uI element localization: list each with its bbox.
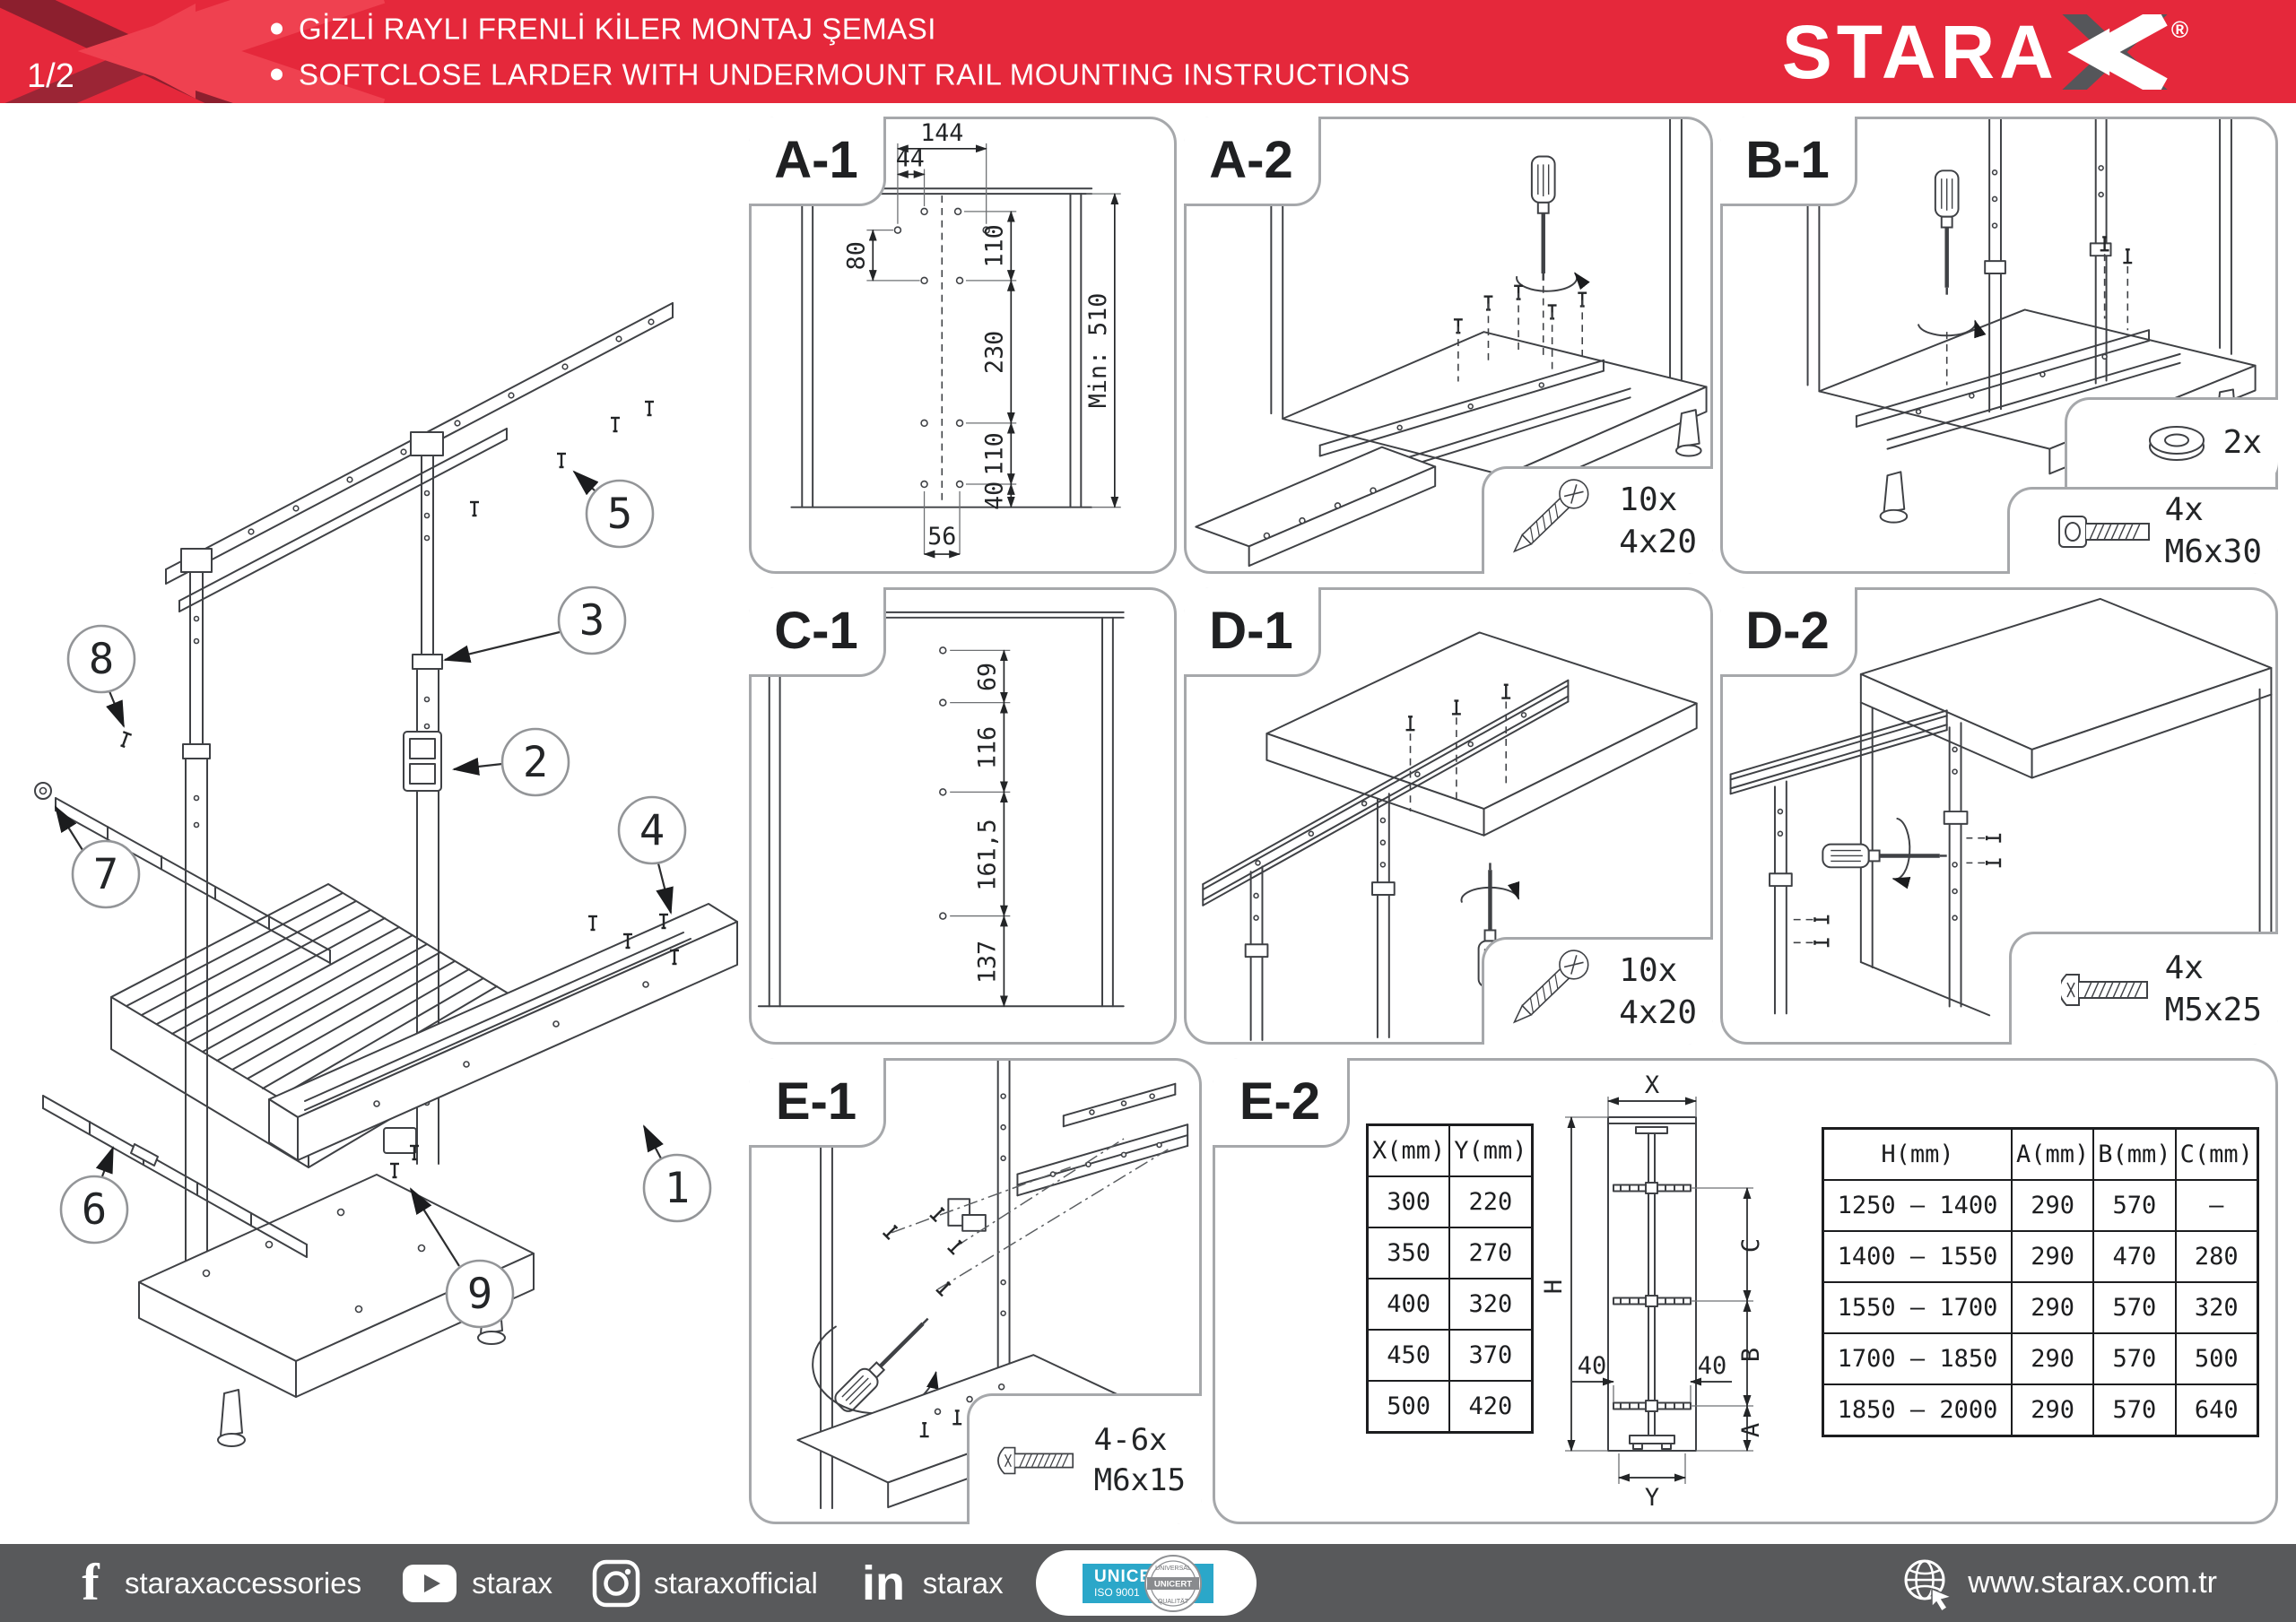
top-rail (166, 303, 673, 612)
header-bar: 1/2 GİZLİ RAYLI FRENLİ KİLER MONTAJ ŞEMA… (0, 0, 2296, 103)
bullet-icon (271, 69, 283, 81)
unicert-seal: UNIVERSAL UNICERT QUALITÄT (1144, 1554, 1203, 1613)
pullout-tray (1196, 447, 1435, 566)
lock-bracket (384, 1128, 416, 1153)
svg-text:3: 3 (579, 596, 604, 646)
svg-text:6: 6 (82, 1185, 107, 1235)
globe-icon (1901, 1557, 1953, 1610)
socket-bolt-icon (2057, 509, 2151, 554)
youtube-icon (401, 1561, 458, 1606)
logo-x-icon (2062, 14, 2168, 90)
registered-mark: ® (2171, 16, 2188, 44)
screwdriver-icon (1532, 157, 1555, 281)
starax-logo: STARA ® (1782, 14, 2188, 90)
screw-icon (1500, 946, 1605, 1039)
callout-8: 8 (68, 626, 135, 726)
svg-text:UNICERT: UNICERT (1154, 1580, 1192, 1590)
a2-hardware-inset: 10x 4x20 (1482, 466, 1713, 574)
height-dimension-table: H(mm) A(mm) B(mm) C(mm) 1250 – 140029057… (1822, 1127, 2259, 1437)
table-row: 1250 – 1400290570– (1823, 1180, 2258, 1231)
rail-pieces (1017, 1084, 1187, 1196)
svg-text:110: 110 (980, 432, 1008, 475)
table-row: 500420 (1368, 1381, 1533, 1433)
panel-e2-label: E-2 (1213, 1058, 1350, 1148)
bolt-count: 4-6x (1094, 1420, 1186, 1460)
svg-text:Min: 510: Min: 510 (1084, 293, 1112, 408)
social-instagram[interactable]: staraxofficial (592, 1559, 818, 1608)
svg-text:X: X (1645, 1071, 1659, 1099)
screw-icon (1500, 475, 1605, 568)
xy-dimension-table: X(mm) Y(mm) 300220 350270 400320 450370 … (1366, 1123, 1534, 1434)
callout-5: 5 (574, 472, 653, 547)
table-row: 1400 – 1550290470280 (1823, 1231, 2258, 1282)
svg-text:7: 7 (93, 850, 118, 899)
title-english-text: SOFTCLOSE LARDER WITH UNDERMOUNT RAIL MO… (299, 57, 1411, 91)
bolt-size: M5x25 (2165, 990, 2262, 1032)
d2-hardware-inset: 4x M5x25 (2009, 932, 2278, 1045)
bolt-size: M6x15 (1094, 1461, 1186, 1500)
screw-count: 10x (1619, 950, 1697, 993)
svg-text:110: 110 (980, 224, 1008, 267)
d1-hardware-inset: 10x 4x20 (1482, 937, 1713, 1045)
panel-a1-label: A-1 (749, 117, 886, 206)
table-row: 450370 (1368, 1330, 1533, 1381)
bolt-count: 4x (2165, 948, 2262, 990)
instruction-sheet: 1/2 GİZLİ RAYLI FRENLİ KİLER MONTAJ ŞEMA… (0, 0, 2296, 1622)
svg-text:137: 137 (974, 941, 1002, 984)
screw-count: 10x (1619, 480, 1697, 522)
callout-6: 6 (61, 1148, 127, 1243)
table-row: H(mm) A(mm) B(mm) C(mm) (1823, 1129, 2258, 1181)
social-links: f staraxaccessories starax staraxofficia… (70, 1544, 1004, 1622)
social-facebook[interactable]: f staraxaccessories (70, 1560, 361, 1607)
svg-text:4: 4 (639, 806, 665, 855)
social-handle: starax (923, 1566, 1004, 1600)
panel-e1-label: E-1 (749, 1058, 886, 1148)
height-bracket (404, 732, 441, 791)
callout-2: 2 (454, 729, 569, 795)
washer-icon (2144, 421, 2209, 467)
panel-b1-label: B-1 (1720, 117, 1857, 206)
svg-text:1: 1 (665, 1164, 690, 1213)
svg-text:40: 40 (1698, 1352, 1727, 1380)
title-english: SOFTCLOSE LARDER WITH UNDERMOUNT RAIL MO… (271, 57, 1411, 91)
svg-text:40: 40 (980, 481, 1008, 510)
washer-count: 2x (2223, 422, 2262, 464)
social-handle: staraxaccessories (125, 1566, 361, 1600)
facebook-icon: f (70, 1560, 111, 1607)
screw-size: 4x20 (1619, 522, 1697, 564)
main-assembly-diagram: 1 2 3 4 5 6 7 8 9 (0, 117, 744, 1524)
b1-washer-inset: 2x (2065, 397, 2278, 487)
e2-height-diagram: X H C B A 40 40 Y (1520, 1061, 1807, 1522)
linkedin-icon: in (857, 1560, 909, 1607)
unicert-badge: UNICERT ISO 9001 UNIVERSAL UNICERT QUALI… (1036, 1550, 1257, 1616)
panel-d1-label: D-1 (1184, 587, 1321, 677)
svg-text:C: C (1737, 1238, 1765, 1253)
screwdriver-icon (1935, 170, 1959, 294)
bolt-size: M6x30 (2165, 532, 2262, 574)
svg-text:5: 5 (607, 490, 632, 539)
panel-a1: A-1 144 44 80 110 230 110 40 Min: 510 56 (749, 117, 1177, 574)
website-url: www.starax.com.tr (1968, 1566, 2217, 1600)
svg-text:9: 9 (467, 1270, 492, 1319)
table-row: 350270 (1368, 1227, 1533, 1279)
b1-bolt-inset: 4x M6x30 (2007, 487, 2278, 574)
instagram-icon (592, 1559, 640, 1608)
svg-text:230: 230 (980, 331, 1008, 374)
table-row: 1550 – 1700290570320 (1823, 1282, 2258, 1333)
callout-1: 1 (644, 1126, 710, 1221)
e1-hardware-inset: 4-6x M6x15 (967, 1393, 1202, 1524)
svg-text:116: 116 (974, 726, 1002, 769)
bullet-icon (271, 23, 283, 35)
panel-d2: D-2 (1720, 587, 2278, 1045)
bolt-count: 4x (2165, 490, 2262, 532)
svg-text:80: 80 (842, 241, 870, 270)
table-header: X(mm) (1368, 1125, 1450, 1177)
panel-d1: D-1 (1184, 587, 1713, 1045)
panel-e2: E-2 X(mm) Y(mm) 300220 350270 400320 450… (1213, 1058, 2278, 1524)
screwdriver-icon (1822, 845, 1946, 868)
pan-bolt-icon (2061, 966, 2151, 1014)
svg-text:56: 56 (927, 523, 956, 551)
svg-text:QUALITÄT: QUALITÄT (1158, 1598, 1189, 1605)
page-number: 1/2 (27, 57, 74, 96)
logo-wordmark: STARA (1782, 14, 2058, 90)
panel-a2: A-2 (1184, 117, 1713, 574)
svg-text:UNIVERSAL: UNIVERSAL (1155, 1566, 1191, 1572)
svg-text:44: 44 (896, 145, 925, 173)
table-header: Y(mm) (1449, 1125, 1532, 1177)
table-row: X(mm) Y(mm) (1368, 1125, 1533, 1177)
social-linkedin[interactable]: in starax (857, 1560, 1004, 1607)
frame-posts (1770, 723, 1967, 1013)
panel-c1-label: C-1 (749, 587, 886, 677)
panel-b1: B-1 2x (1720, 117, 2278, 574)
table-row: 1700 – 1850290570500 (1823, 1333, 2258, 1384)
svg-text:in: in (862, 1560, 905, 1607)
screw-size: 4x20 (1619, 993, 1697, 1035)
svg-text:H: H (1540, 1279, 1568, 1294)
callout-3: 3 (445, 587, 625, 660)
hanging-posts (1246, 794, 1395, 1040)
panel-e1: E-1 (749, 1058, 1202, 1524)
svg-text:69: 69 (974, 663, 1002, 691)
svg-text:8: 8 (89, 635, 114, 684)
svg-text:Y: Y (1645, 1484, 1659, 1512)
panel-d2-label: D-2 (1720, 587, 1857, 677)
social-handle: starax (472, 1566, 552, 1600)
table-row: 300220 (1368, 1176, 1533, 1227)
svg-text:B: B (1737, 1348, 1765, 1362)
svg-text:161,5: 161,5 (974, 819, 1002, 890)
pan-bolt-icon (997, 1436, 1080, 1486)
website-link[interactable]: www.starax.com.tr (1901, 1544, 2217, 1622)
rails (1613, 1183, 1691, 1411)
mounting-bracket (948, 1199, 986, 1231)
callout-4: 4 (619, 797, 685, 913)
table-row: 400320 (1368, 1279, 1533, 1330)
social-handle: staraxofficial (654, 1566, 818, 1600)
svg-text:2: 2 (523, 738, 548, 787)
page-title: GİZLİ RAYLI FRENLİ KİLER MONTAJ ŞEMASI S… (271, 12, 1411, 91)
svg-text:f: f (82, 1560, 100, 1607)
footer-bar: f staraxaccessories starax staraxofficia… (0, 1544, 2296, 1622)
panel-a2-label: A-2 (1184, 117, 1321, 206)
title-turkish-text: GİZLİ RAYLI FRENLİ KİLER MONTAJ ŞEMASI (299, 12, 936, 46)
svg-text:144: 144 (920, 119, 963, 147)
social-youtube[interactable]: starax (401, 1561, 552, 1606)
svg-text:40: 40 (1578, 1352, 1607, 1380)
title-turkish: GİZLİ RAYLI FRENLİ KİLER MONTAJ ŞEMASI (271, 12, 1411, 46)
panel-c1: C-1 69 116 161,5 137 (749, 587, 1177, 1045)
table-row: 1850 – 2000290570640 (1823, 1384, 2258, 1436)
svg-text:A: A (1737, 1423, 1765, 1437)
